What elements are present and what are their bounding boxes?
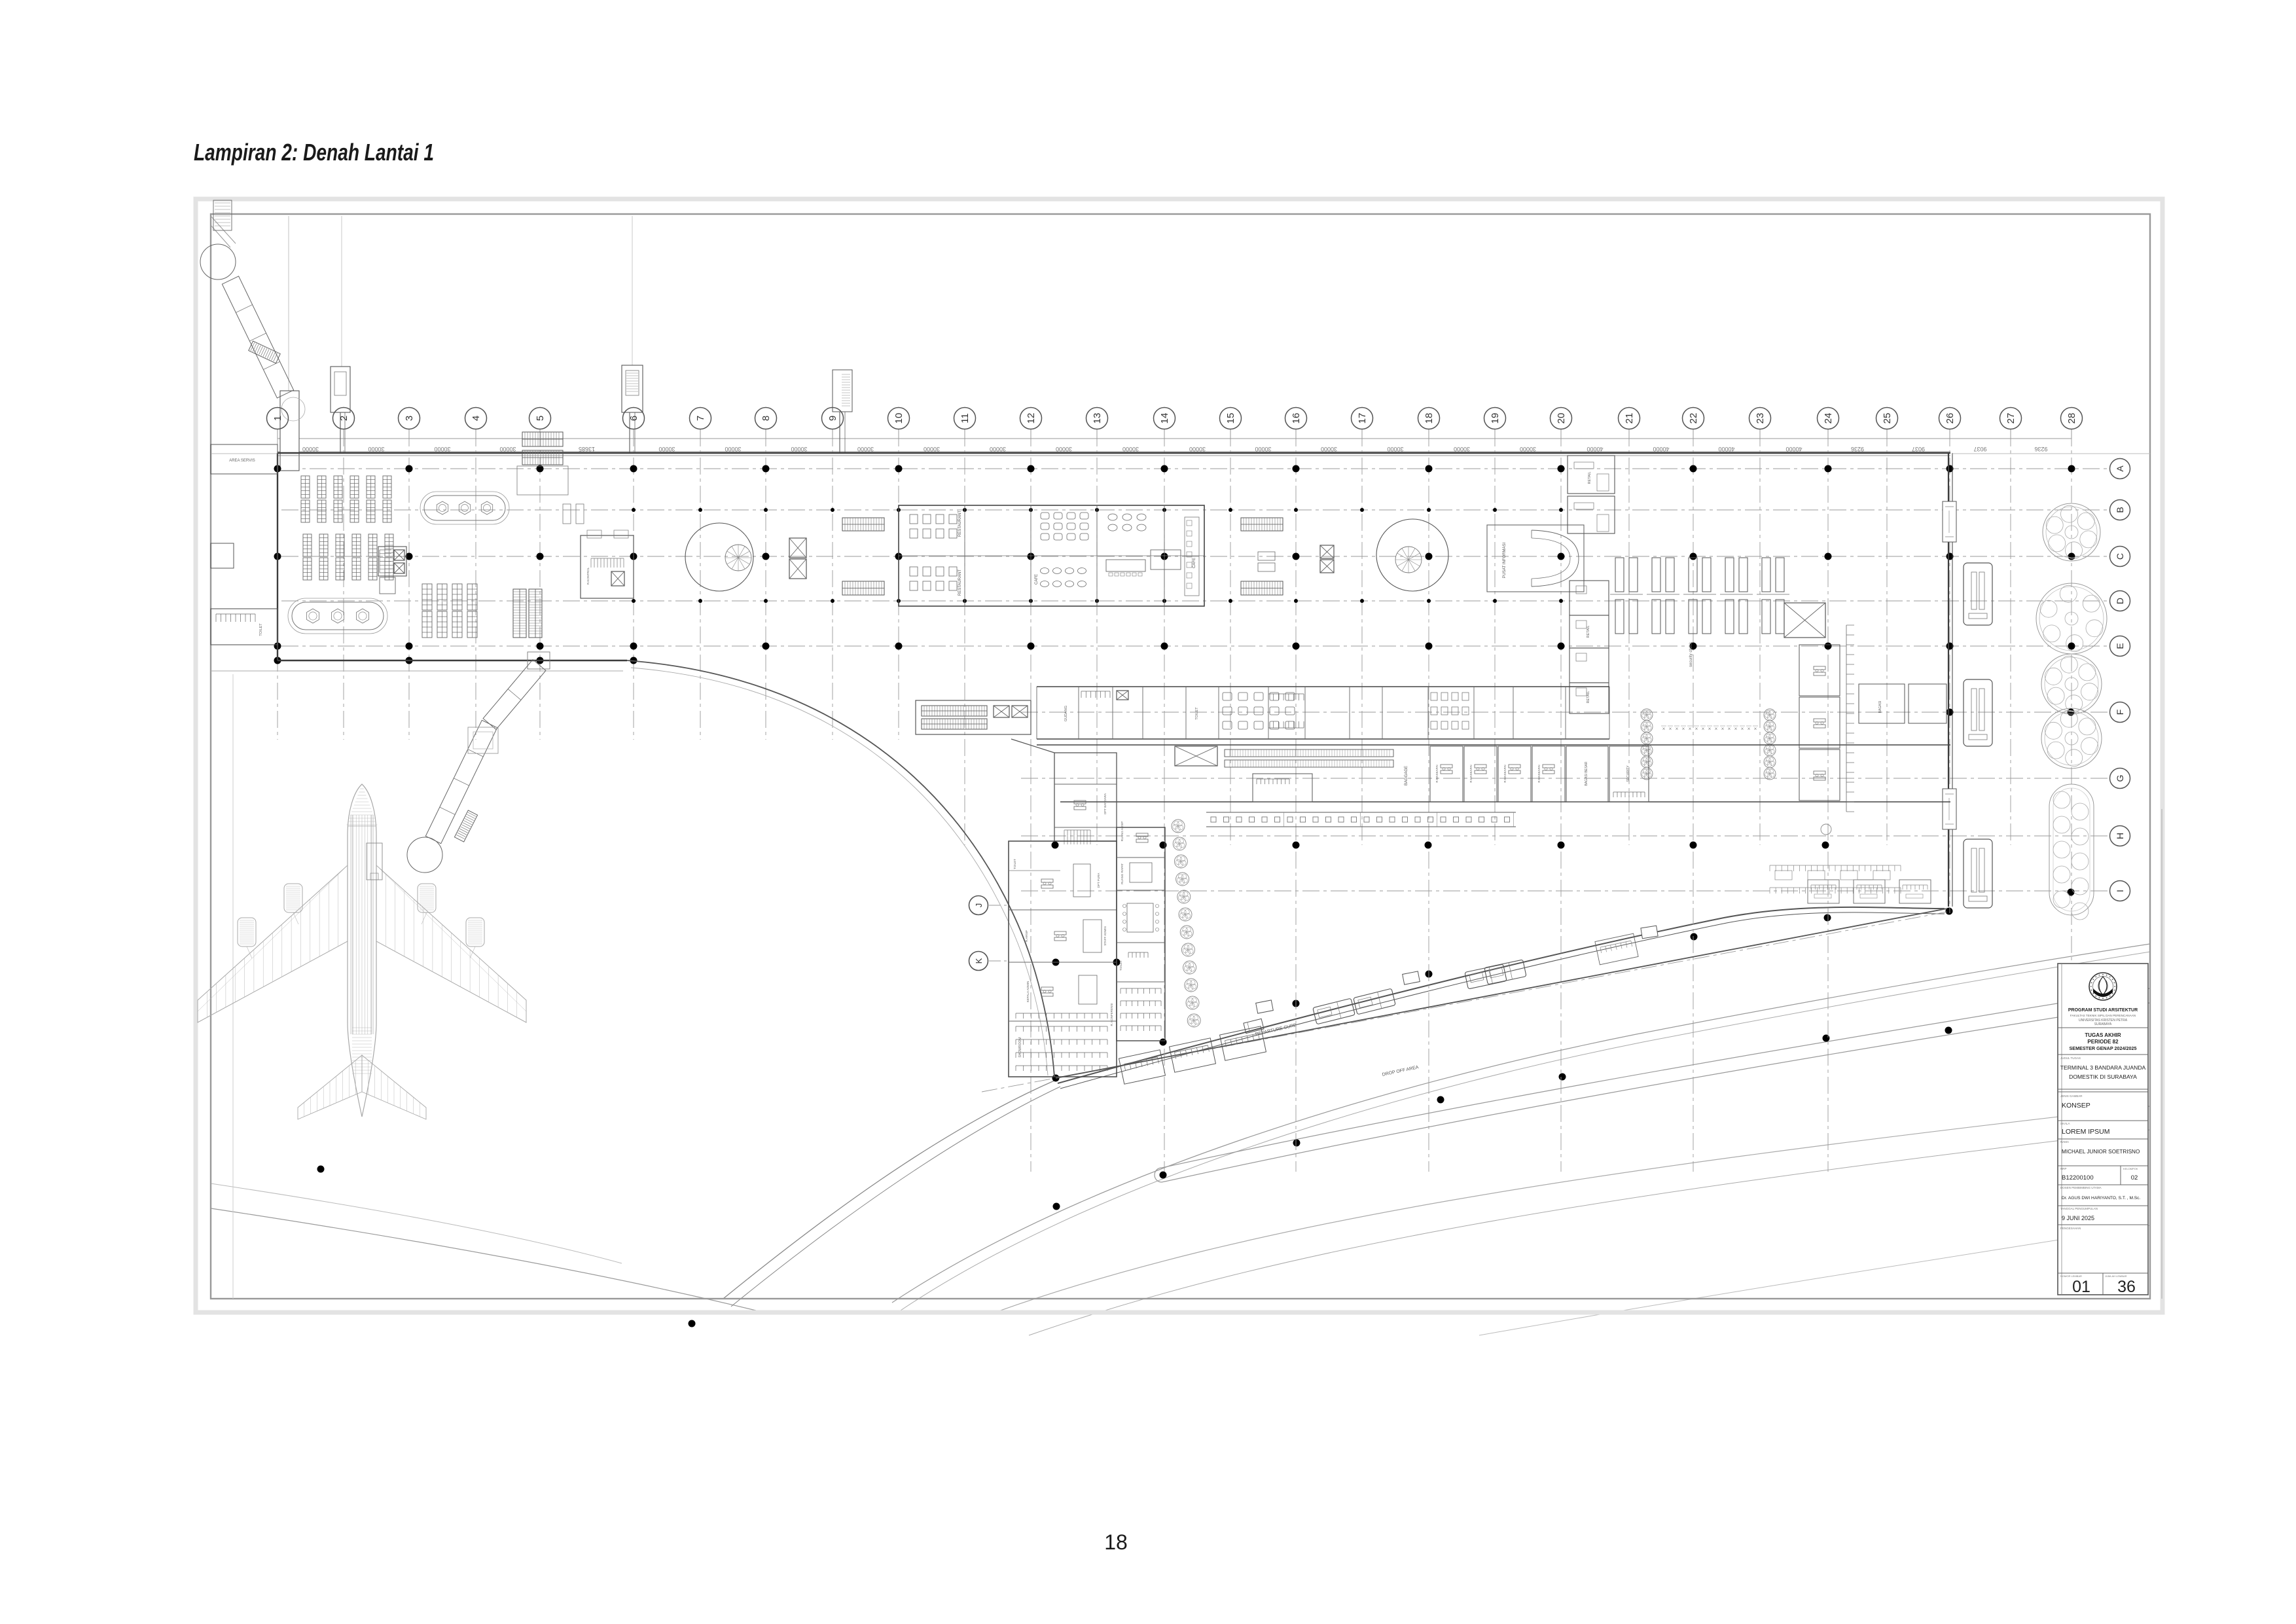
svg-text:21: 21 (1624, 413, 1635, 424)
svg-text:02: 02 (2131, 1174, 2138, 1182)
svg-text:JUDUL TUGAS: JUDUL TUGAS (2060, 1056, 2081, 1060)
svg-text:I: I (2115, 890, 2125, 892)
svg-text:TOILET: TOILET (259, 623, 263, 636)
svg-text:K: K (974, 958, 984, 964)
svg-text:9: 9 (827, 416, 838, 421)
svg-text:6: 6 (628, 416, 639, 421)
svg-text:D: D (2115, 598, 2125, 604)
svg-text:×: × (1728, 726, 1731, 732)
svg-text:AREA SERVIS: AREA SERVIS (229, 459, 255, 463)
svg-text:RESTAURANT: RESTAURANT (958, 511, 962, 537)
svg-text:CAFE: CAFE (1035, 574, 1039, 585)
svg-text:40000: 40000 (1653, 446, 1669, 452)
svg-text:SKALA: SKALA (2060, 1122, 2070, 1125)
svg-text:30000: 30000 (1122, 446, 1139, 452)
svg-text:11: 11 (960, 413, 971, 424)
svg-text:TERMINAL 3 BANDARA JUANDA: TERMINAL 3 BANDARA JUANDA (2060, 1064, 2146, 1071)
svg-text:18: 18 (1104, 1530, 1128, 1554)
svg-text:×: × (1715, 726, 1718, 732)
svg-text:PUSAT INFORMASI: PUSAT INFORMASI (1503, 542, 1507, 578)
svg-text:A: A (2115, 465, 2125, 472)
svg-text:×: × (1754, 726, 1757, 732)
svg-text:9037: 9037 (1912, 446, 1925, 452)
svg-text:C: C (2115, 553, 2125, 560)
svg-text:30000: 30000 (990, 446, 1006, 452)
svg-text:19: 19 (1490, 413, 1501, 424)
svg-text:DPT PURA: DPT PURA (1097, 873, 1100, 888)
svg-text:SURABAYA: SURABAYA (2094, 1022, 2112, 1026)
svg-text:×: × (1662, 726, 1666, 732)
svg-text:13685: 13685 (579, 446, 595, 452)
svg-text:BAGASI BESAR: BAGASI BESAR (1585, 761, 1588, 785)
svg-text:24: 24 (1823, 413, 1834, 424)
svg-text:27: 27 (2005, 413, 2017, 424)
svg-text:12: 12 (1026, 413, 1037, 424)
svg-text:NAMA: NAMA (2060, 1140, 2069, 1144)
svg-text:F: F (2115, 710, 2125, 715)
svg-text:9236: 9236 (1851, 446, 1864, 452)
svg-text:30000: 30000 (1321, 446, 1337, 452)
svg-text:30000: 30000 (1520, 446, 1536, 452)
svg-text:MICHAEL JUNIOR SOETRISNO: MICHAEL JUNIOR SOETRISNO (2062, 1149, 2140, 1155)
svg-text:28: 28 (2066, 413, 2077, 424)
svg-text:×: × (1748, 726, 1751, 732)
svg-text:PROGRAM STUDI ARSITEKTUR: PROGRAM STUDI ARSITEKTUR (2068, 1008, 2138, 1013)
svg-text:PENGESAHAN: PENGESAHAN (2060, 1227, 2081, 1230)
svg-text:GUDANG: GUDANG (1064, 706, 1068, 721)
svg-text:30000: 30000 (1189, 446, 1206, 452)
svg-text:30000: 30000 (1454, 446, 1470, 452)
svg-text:22: 22 (1688, 413, 1699, 424)
svg-text:TANGGAL PENGUMPULAN: TANGGAL PENGUMPULAN (2060, 1207, 2098, 1210)
svg-text:RETAIL: RETAIL (1588, 472, 1592, 484)
svg-text:9 JUNI 2025: 9 JUNI 2025 (2062, 1215, 2094, 1221)
svg-text:3: 3 (404, 416, 415, 421)
svg-text:R.ARSIP: R.ARSIP (1025, 930, 1028, 942)
svg-text:R.KONTROL: R.KONTROL (586, 567, 590, 585)
svg-text:×: × (1702, 726, 1705, 732)
svg-text:14: 14 (1159, 413, 1170, 424)
svg-text:20: 20 (1556, 413, 1567, 424)
svg-text:TOILET: TOILET (1195, 707, 1199, 720)
svg-text:FAKULTAS TEKNIK SIPIL DAN PERE: FAKULTAS TEKNIK SIPIL DAN PERENCANAAN (2070, 1014, 2136, 1017)
svg-text:9037: 9037 (1973, 446, 1986, 452)
svg-text:PERIODE 82: PERIODE 82 (2087, 1039, 2119, 1045)
svg-text:SEMESTER GENAP 2024/2025: SEMESTER GENAP 2024/2025 (2070, 1045, 2137, 1051)
svg-text:BAGASI: BAGASI (1878, 701, 1882, 713)
svg-text:30000: 30000 (302, 446, 319, 452)
svg-text:LOREM IPSUM: LOREM IPSUM (2062, 1128, 2110, 1136)
svg-text:26: 26 (1945, 413, 1956, 424)
svg-text:30000: 30000 (1056, 446, 1072, 452)
svg-text:TOILET: TOILET (1119, 960, 1122, 971)
svg-text:R.MASKAPAI: R.MASKAPAI (1435, 765, 1439, 782)
svg-text:KONSEP: KONSEP (2062, 1102, 2090, 1110)
svg-text:4: 4 (471, 416, 482, 421)
svg-text:30000: 30000 (368, 446, 384, 452)
svg-text:17: 17 (1357, 413, 1368, 424)
svg-text:BAGGAGE: BAGGAGE (1405, 766, 1408, 785)
svg-text:×: × (1695, 726, 1698, 732)
svg-text:R. KONFERENSI: R. KONFERENSI (1110, 1003, 1113, 1026)
svg-text:9236: 9236 (2034, 446, 2047, 452)
svg-text:TUGAS AKHIR: TUGAS AKHIR (2085, 1032, 2121, 1038)
svg-text:SECURITY: SECURITY (1626, 765, 1630, 782)
svg-text:1: 1 (272, 416, 283, 421)
svg-text:KELOMPOK: KELOMPOK (2123, 1167, 2138, 1170)
svg-text:7: 7 (695, 416, 706, 421)
svg-text:8: 8 (761, 416, 772, 421)
svg-text:23: 23 (1755, 413, 1766, 424)
svg-text:RUANG RAPAT: RUANG RAPAT (1121, 863, 1124, 884)
svg-text:B: B (2115, 507, 2125, 513)
svg-text:15: 15 (1225, 413, 1236, 424)
svg-text:DOSEN PEMBIMBING UTAMA: DOSEN PEMBIMBING UTAMA (2060, 1186, 2102, 1189)
svg-text:SHOWROOM: SHOWROOM (1018, 1037, 1022, 1057)
svg-text:×: × (1669, 726, 1672, 732)
svg-text:R.MASKAPAI: R.MASKAPAI (1537, 765, 1541, 782)
svg-text:16: 16 (1291, 413, 1302, 424)
svg-text:13: 13 (1092, 413, 1103, 424)
svg-text:30000: 30000 (791, 446, 807, 452)
svg-text:B12200100: B12200100 (2062, 1174, 2094, 1182)
svg-text:40000: 40000 (1785, 446, 1802, 452)
svg-text:DOMESTIK DI SURABAYA: DOMESTIK DI SURABAYA (2069, 1074, 2137, 1080)
svg-text:×: × (1676, 726, 1679, 732)
svg-text:R.MASKAPAI: R.MASKAPAI (1469, 765, 1473, 782)
svg-text:01: 01 (2072, 1278, 2090, 1296)
svg-text:RETAIL: RETAIL (1587, 691, 1590, 704)
svg-text:30000: 30000 (1255, 446, 1271, 452)
svg-text:security check: security check (1689, 641, 1693, 667)
svg-text:30000: 30000 (1387, 446, 1403, 452)
svg-text:E: E (2115, 643, 2125, 649)
svg-text:NRP: NRP (2060, 1167, 2067, 1170)
svg-text:×: × (1689, 726, 1692, 732)
svg-text:×: × (1741, 726, 1744, 732)
svg-text:R.MASKAPAI: R.MASKAPAI (1503, 765, 1507, 782)
svg-text:JENIS GAMBAR: JENIS GAMBAR (2060, 1094, 2083, 1098)
svg-text:2: 2 (338, 416, 350, 421)
svg-text:36: 36 (2117, 1278, 2136, 1296)
svg-text:×: × (1734, 726, 1738, 732)
svg-text:TOILET: TOILET (1013, 859, 1016, 869)
svg-text:30000: 30000 (658, 446, 675, 452)
svg-text:G: G (2115, 775, 2125, 782)
svg-text:5: 5 (535, 416, 546, 421)
svg-text:25: 25 (1882, 413, 1893, 424)
svg-text:30000: 30000 (857, 446, 874, 452)
svg-text:30000: 30000 (924, 446, 940, 452)
svg-text:RETAIL: RETAIL (1587, 626, 1590, 638)
svg-text:40000: 40000 (1587, 446, 1603, 452)
svg-text:H: H (2115, 833, 2125, 839)
svg-text:40000: 40000 (1718, 446, 1734, 452)
svg-text:KEPALA ADMIN: KEPALA ADMIN (1026, 981, 1030, 1002)
svg-text:30000: 30000 (499, 446, 516, 452)
svg-text:30000: 30000 (434, 446, 450, 452)
svg-text:×: × (1721, 726, 1725, 732)
svg-text:10: 10 (893, 413, 905, 424)
svg-text:30000: 30000 (725, 446, 741, 452)
svg-text:RESTAURANT: RESTAURANT (958, 569, 962, 596)
svg-text:STAFF ADMIN: STAFF ADMIN (1103, 926, 1107, 945)
svg-text:×: × (1682, 726, 1685, 732)
svg-text:Lampiran 2: Denah Lantai 1: Lampiran 2: Denah Lantai 1 (194, 139, 434, 166)
svg-text:18: 18 (1424, 413, 1435, 424)
svg-text:CAFE: CAFE (1193, 558, 1196, 568)
svg-text:DPT BANDARA: DPT BANDARA (1103, 793, 1107, 814)
svg-text:Dr. AGUS DWI HARIYANTO, S.T. ,: Dr. AGUS DWI HARIYANTO, S.T. , M.Sc. (2062, 1196, 2140, 1200)
svg-text:J: J (974, 903, 984, 908)
svg-text:RUANG ARSIP: RUANG ARSIP (1121, 821, 1124, 842)
svg-text:×: × (1708, 726, 1712, 732)
